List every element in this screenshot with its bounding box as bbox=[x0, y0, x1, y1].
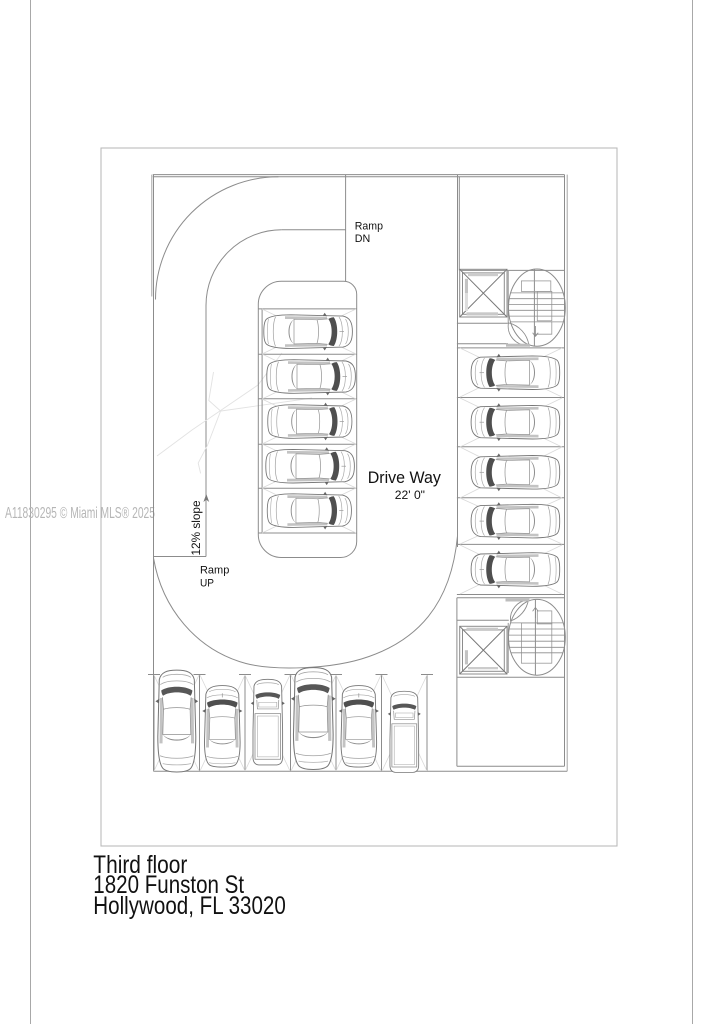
svg-text:UP: UP bbox=[200, 578, 214, 590]
svg-text:22' 0": 22' 0" bbox=[395, 490, 425, 502]
svg-text:Ramp: Ramp bbox=[355, 221, 383, 233]
svg-text:DN: DN bbox=[355, 233, 371, 245]
svg-text:12% slope: 12% slope bbox=[189, 500, 203, 555]
svg-text:Drive Way: Drive Way bbox=[368, 469, 442, 487]
svg-text:Hollywood, FL 33020: Hollywood, FL 33020 bbox=[93, 892, 285, 920]
svg-text:A11830295 © Miami MLS® 2025: A11830295 © Miami MLS® 2025 bbox=[5, 505, 155, 522]
svg-text:Ramp: Ramp bbox=[200, 565, 229, 577]
